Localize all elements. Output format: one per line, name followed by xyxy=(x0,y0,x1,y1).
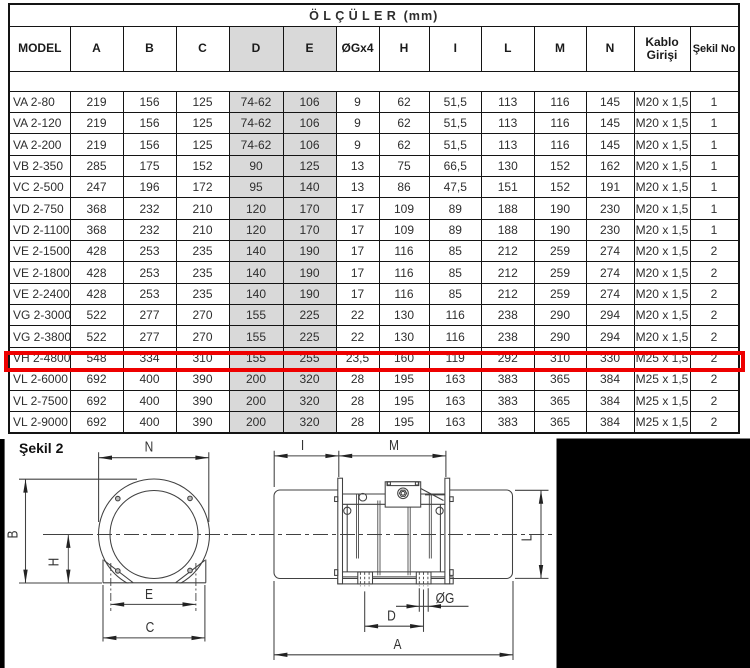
svg-text:C: C xyxy=(146,619,155,636)
svg-text:L: L xyxy=(518,534,535,541)
svg-text:M: M xyxy=(389,437,399,453)
svg-text:N: N xyxy=(145,438,154,455)
svg-text:D: D xyxy=(387,607,396,624)
svg-text:Şekil 2: Şekil 2 xyxy=(19,440,64,456)
svg-text:I: I xyxy=(301,437,304,453)
svg-text:B: B xyxy=(4,530,21,538)
svg-text:ØG: ØG xyxy=(436,590,455,607)
svg-text:A: A xyxy=(393,636,402,653)
svg-text:E: E xyxy=(145,586,153,603)
svg-text:H: H xyxy=(45,558,62,567)
